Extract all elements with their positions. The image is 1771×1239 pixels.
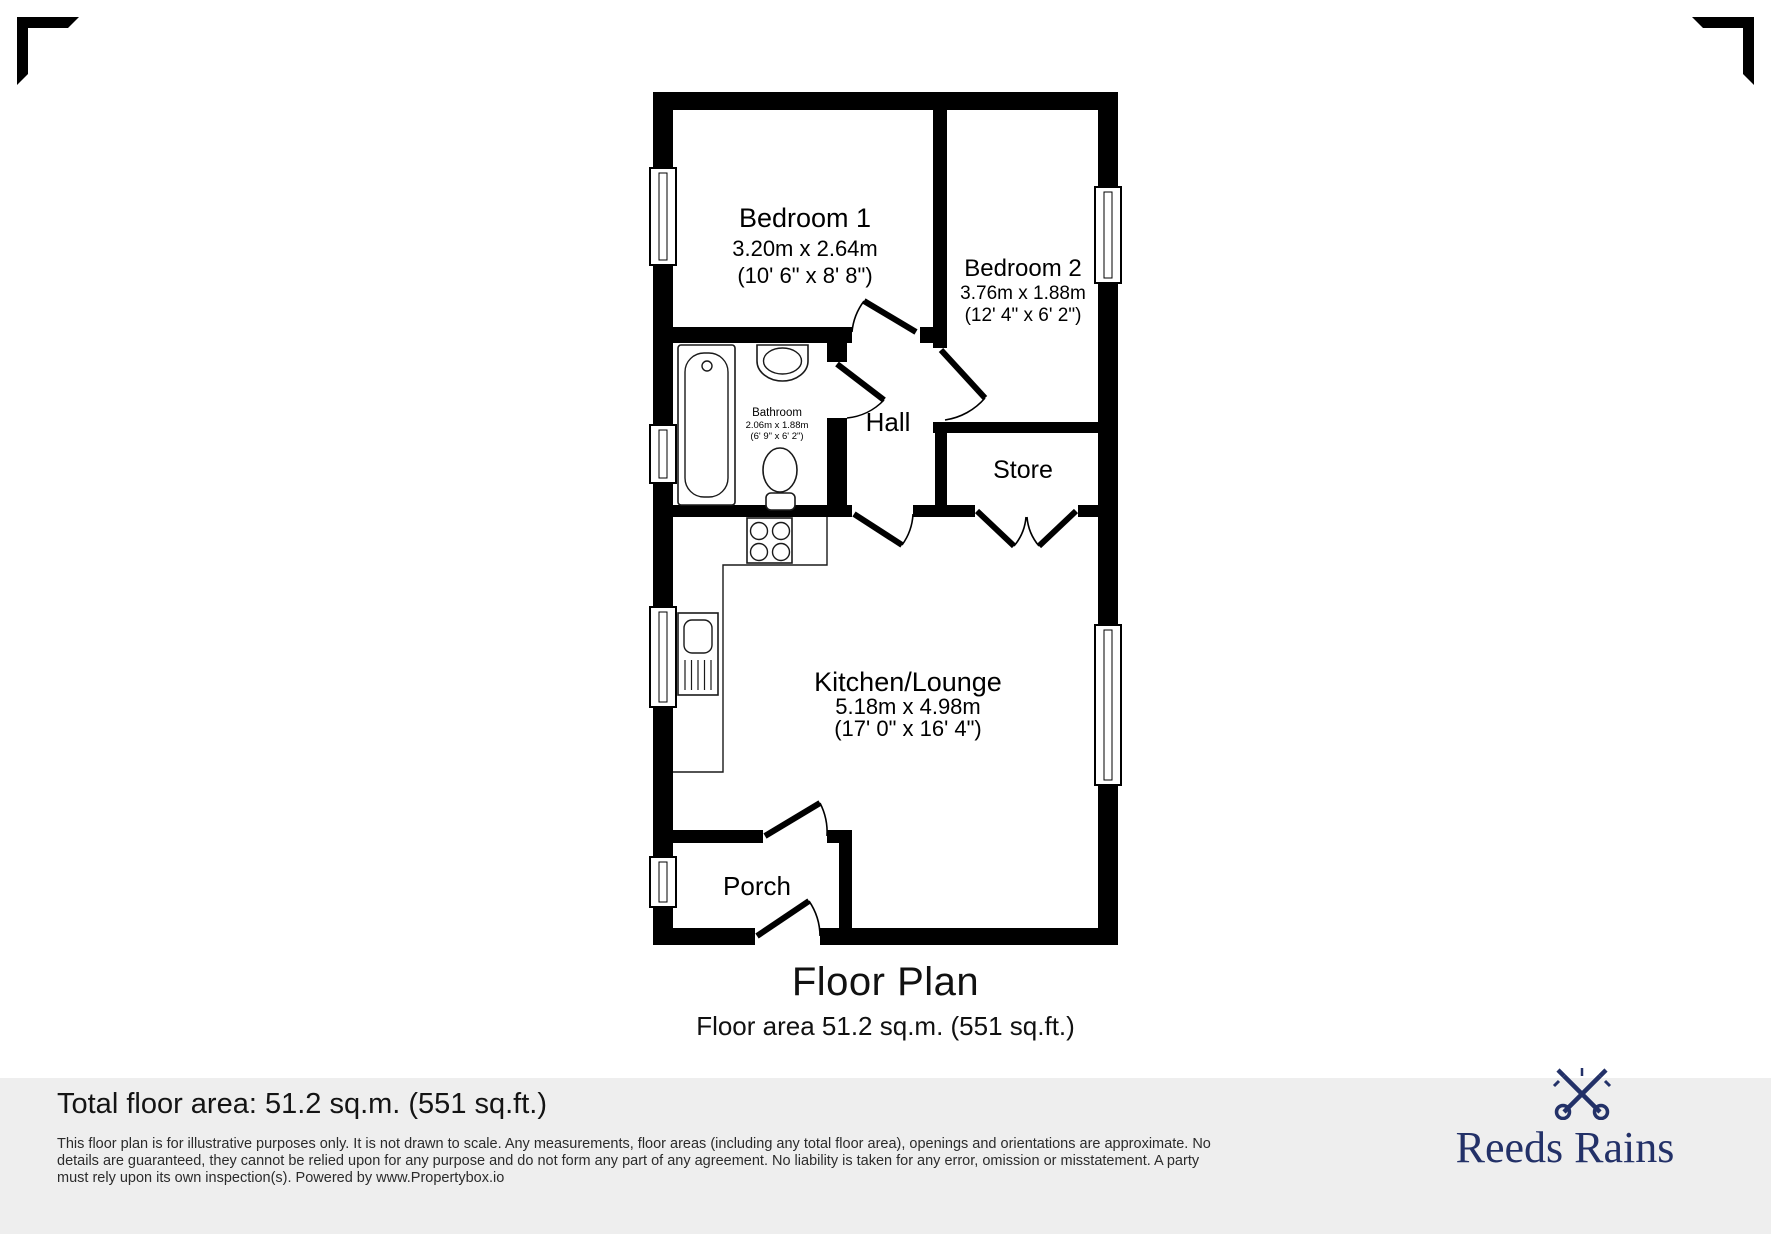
sink-drainer-icon xyxy=(678,613,718,695)
door-porch-kitchen-icon xyxy=(765,803,827,836)
corner-mark-top-left xyxy=(17,17,79,85)
bedroom2-label: Bedroom 2 xyxy=(964,255,1081,282)
doors xyxy=(757,301,1076,936)
store-label: Store xyxy=(993,456,1053,484)
basin-icon xyxy=(757,345,808,381)
wall-porch-top-left xyxy=(653,830,763,843)
bedroom1-dim-imperial: (10' 6" x 8' 8") xyxy=(737,263,872,288)
corner-mark-top-right xyxy=(1692,17,1754,85)
wall-porch-right xyxy=(839,830,852,928)
bedroom2-dim-metric: 3.76m x 1.88m xyxy=(960,283,1086,304)
bathroom-dim-imperial: (6' 9" x 6' 2") xyxy=(750,431,803,442)
wall-bedroom-divider xyxy=(933,110,947,348)
disclaimer-line-2: details are guaranteed, they cannot be r… xyxy=(57,1153,1211,1170)
toilet-icon xyxy=(763,448,797,510)
window-bedroom1-icon xyxy=(650,168,676,265)
disclaimer-line-1: This floor plan is for illustrative purp… xyxy=(57,1136,1211,1153)
window-bedroom2-icon xyxy=(1095,187,1121,283)
hob-icon xyxy=(747,518,792,563)
window-bathroom-icon xyxy=(650,425,676,483)
window-kitchen-left-icon xyxy=(650,607,676,707)
opening-store-doors xyxy=(975,505,1078,517)
bathtub-icon xyxy=(678,345,735,505)
walls xyxy=(653,92,1118,945)
bedroom2-dim-imperial: (12' 4" x 6' 2") xyxy=(965,305,1082,326)
brand-crest-icon xyxy=(1548,1066,1616,1120)
brand-wordmark: Reeds Rains xyxy=(1400,1122,1730,1173)
floorplan-drawing: Bedroom 1 3.20m x 2.64m (10' 6" x 8' 8")… xyxy=(0,0,1771,1239)
fixtures xyxy=(673,345,827,772)
wall-exterior-bottom xyxy=(653,928,1118,945)
corner-marks xyxy=(17,17,1754,1232)
wall-exterior-top xyxy=(653,92,1118,110)
disclaimer-text: This floor plan is for illustrative purp… xyxy=(57,1136,1211,1187)
wall-hall-store-divider xyxy=(935,422,947,517)
floorplan-page: Bedroom 1 3.20m x 2.64m (10' 6" x 8' 8")… xyxy=(0,0,1771,1239)
window-kitchen-right-icon xyxy=(1095,625,1121,785)
door-bedroom2-icon xyxy=(941,350,985,420)
floor-area-subtitle: Floor area 51.2 sq.m. (551 sq.ft.) xyxy=(613,1011,1158,1042)
door-hall-kitchen-icon xyxy=(854,514,913,545)
disclaimer-line-3: must rely upon its own inspection(s). Po… xyxy=(57,1170,1211,1187)
hall-label: Hall xyxy=(866,407,911,437)
kitchen-label: Kitchen/Lounge xyxy=(814,667,1002,697)
porch-label: Porch xyxy=(723,871,791,901)
window-porch-icon xyxy=(650,857,676,907)
kitchen-dim-imperial: (17' 0" x 16' 4") xyxy=(834,716,982,741)
total-floor-area: Total floor area: 51.2 sq.m. (551 sq.ft.… xyxy=(57,1088,547,1121)
bathroom-dim-metric: 2.06m x 1.88m xyxy=(746,420,809,431)
bedroom1-dim-metric: 3.20m x 2.64m xyxy=(732,236,878,261)
page-title: Floor Plan xyxy=(653,960,1118,1005)
bedroom1-label: Bedroom 1 xyxy=(739,203,871,233)
wall-store-top xyxy=(933,422,1098,433)
bathroom-label: Bathroom xyxy=(752,407,802,419)
